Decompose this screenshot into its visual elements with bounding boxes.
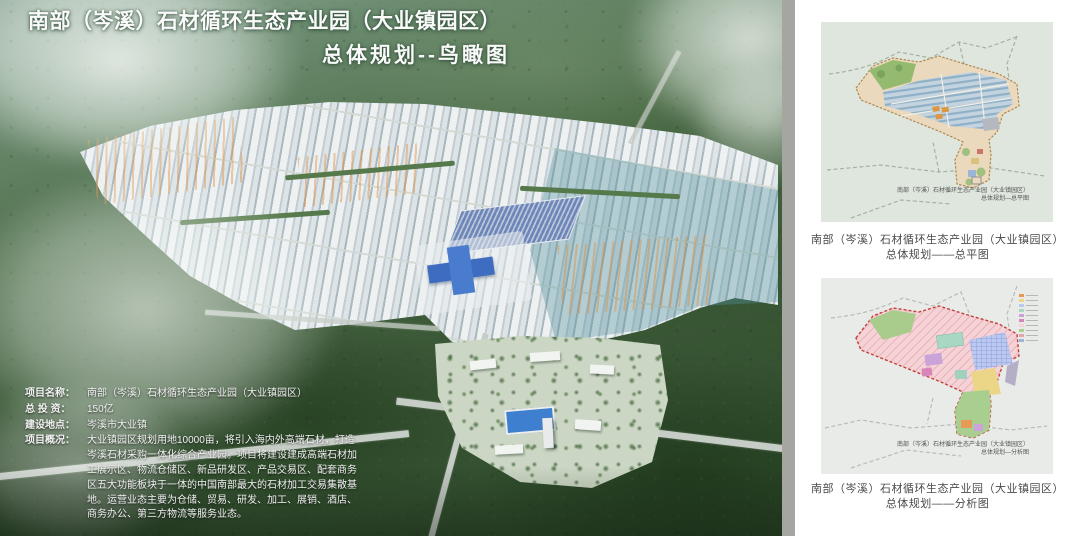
master-plan-map: 南部（岑溪）石材循环生态产业园（大业镇园区） 总体规划—总平图 [821, 22, 1053, 222]
title-line1: 南部（岑溪）石材循环生态产业园（大业镇园区） [28, 7, 510, 37]
info-value: 大业镇园区规划用地10000亩，将引入海内外高端石材，打造岑溪石材采购一体化综合… [87, 434, 363, 523]
info-label: 总 投 资： [25, 403, 87, 418]
central-blue-building [425, 242, 497, 299]
hotel-tower [542, 418, 554, 448]
gray-block [982, 117, 1000, 131]
info-label: 项目概况： [25, 434, 87, 449]
poster-title: 南部（岑溪）石材循环生态产业园（大业镇园区） 总体规划--鸟瞰图 [28, 7, 510, 71]
project-info: 项目名称： 南部（岑溪）石材循环生态产业园（大业镇园区） 总 投 资： 150亿… [25, 387, 363, 524]
info-label: 建设地点： [25, 419, 87, 434]
info-row-name: 项目名称： 南部（岑溪）石材循环生态产业园（大业镇园区） [25, 387, 363, 402]
poster-page: 南部（岑溪）石材循环生态产业园（大业镇园区） 总体规划--鸟瞰图 项目名称： 南… [0, 0, 1080, 536]
small-building [590, 364, 614, 374]
map2-caption: 南部（岑溪）石材循环生态产业园（大业镇园区） 总体规划——分析图 [795, 482, 1080, 512]
purple-subzone [974, 424, 983, 431]
side-panel: 南部（岑溪）石材循环生态产业园（大业镇园区） 总体规划—总平图 南部（岑溪）石材… [795, 0, 1080, 536]
vertical-divider [782, 0, 795, 536]
info-row-location: 建设地点： 岑溪市大业镇 [25, 419, 363, 434]
purple-zone [924, 353, 942, 366]
inmap-label-line1: 南部（岑溪）石材循环生态产业园（大业镇园区） [897, 186, 1029, 194]
info-value: 150亿 [87, 403, 363, 418]
info-label: 项目名称： [25, 387, 87, 402]
map1-caption-line1: 南部（岑溪）石材循环生态产业园（大业镇园区） [795, 233, 1080, 248]
master-plan-svg: 南部（岑溪）石材循环生态产业园（大业镇园区） 总体规划—总平图 [821, 22, 1053, 222]
info-value: 南部（岑溪）石材循环生态产业园（大业镇园区） [87, 387, 363, 402]
map1-caption-line2: 总体规划——总平图 [795, 248, 1080, 263]
teal-zone-small [955, 370, 967, 379]
inmap-label-line2: 总体规划—总平图 [981, 194, 1029, 202]
small-building [575, 419, 602, 431]
magenta-zone [921, 367, 932, 376]
tree-blob [877, 70, 885, 78]
map2-caption-line1: 南部（岑溪）石材循环生态产业园（大业镇园区） [795, 482, 1080, 497]
info-value: 岑溪市大业镇 [87, 419, 363, 434]
small-building [495, 444, 523, 454]
orange-roof-detail [558, 235, 713, 315]
blue-building-wing [447, 245, 475, 296]
tree-blob [896, 65, 903, 72]
info-row-overview: 项目概况： 大业镇园区规划用地10000亩，将引入海内外高端石材，打造岑溪石材采… [25, 434, 363, 523]
analysis-map-svg: 南部（岑溪）石材循环生态产业园（大业镇园区） 总体规划—分析图 [821, 278, 1053, 474]
analysis-map: 南部（岑溪）石材循环生态产业园（大业镇园区） 总体规划—分析图 [821, 278, 1053, 474]
inmap-label-line2: 总体规划—分析图 [981, 448, 1029, 456]
aerial-render: 南部（岑溪）石材循环生态产业园（大业镇园区） 总体规划--鸟瞰图 项目名称： 南… [0, 0, 782, 536]
map1-caption: 南部（岑溪）石材循环生态产业园（大业镇园区） 总体规划——总平图 [795, 233, 1080, 263]
cloud [690, 60, 782, 180]
orange-subzone [961, 420, 972, 428]
info-row-investment: 总 投 资： 150亿 [25, 403, 363, 418]
title-line2: 总体规划--鸟瞰图 [28, 41, 510, 71]
map2-caption-line2: 总体规划——分析图 [795, 497, 1080, 512]
inmap-label-line1: 南部（岑溪）石材循环生态产业园（大业镇园区） [897, 440, 1029, 448]
